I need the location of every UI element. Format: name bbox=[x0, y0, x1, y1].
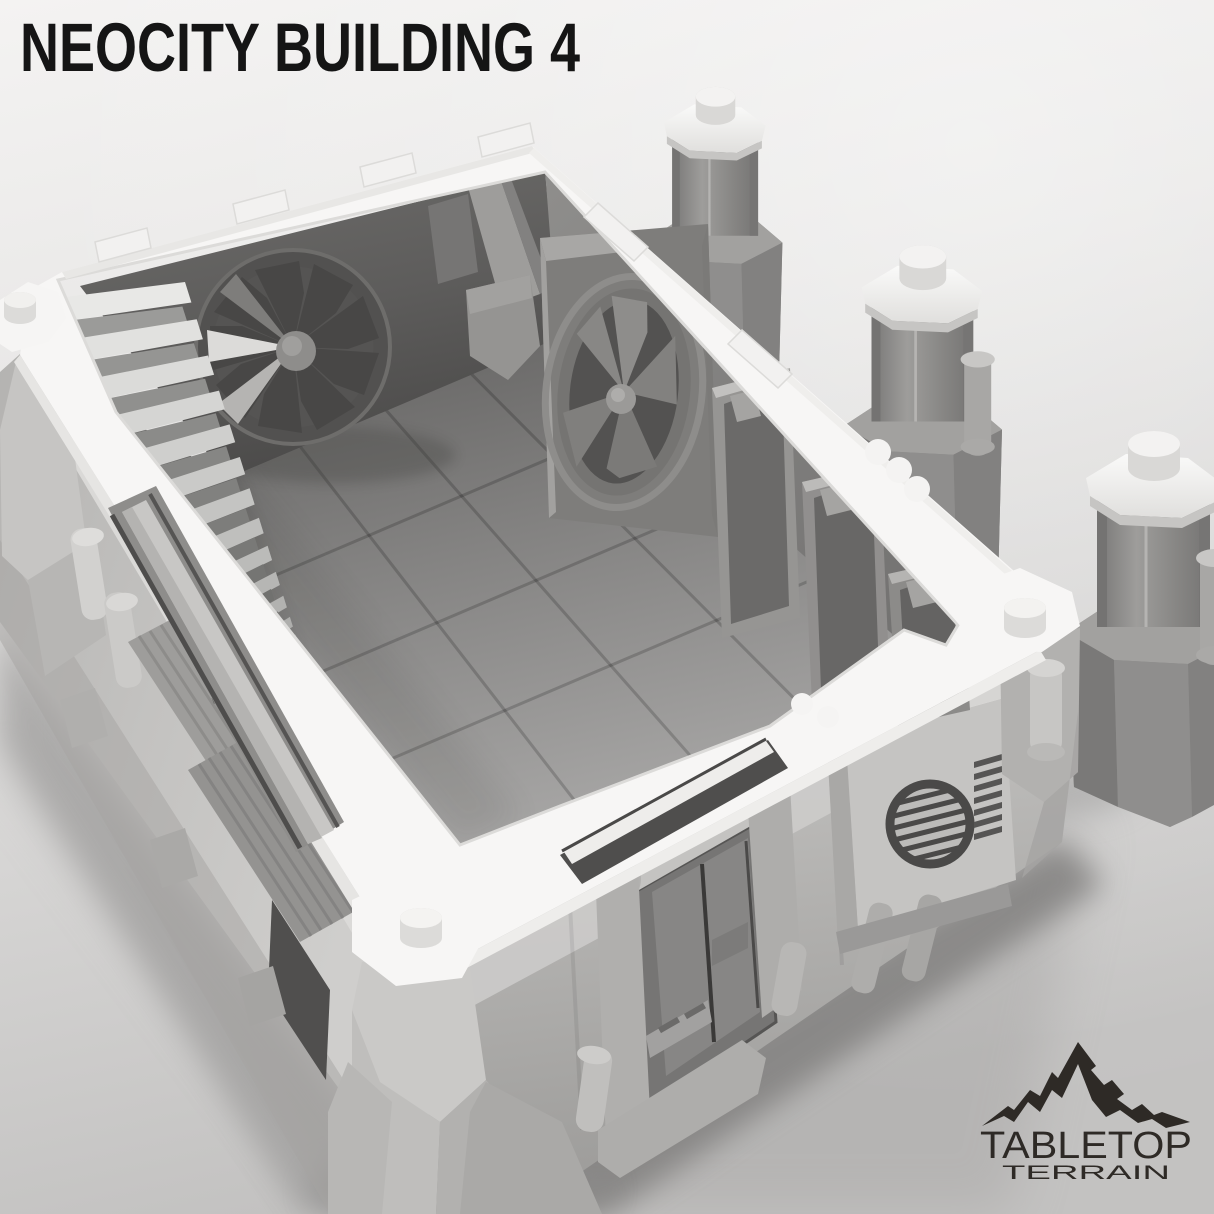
svg-text:TERRAIN: TERRAIN bbox=[1002, 1163, 1170, 1184]
svg-text:TABLETOP: TABLETOP bbox=[980, 1125, 1192, 1167]
svg-text:NEOCITY BUILDING 4: NEOCITY BUILDING 4 bbox=[20, 9, 580, 86]
